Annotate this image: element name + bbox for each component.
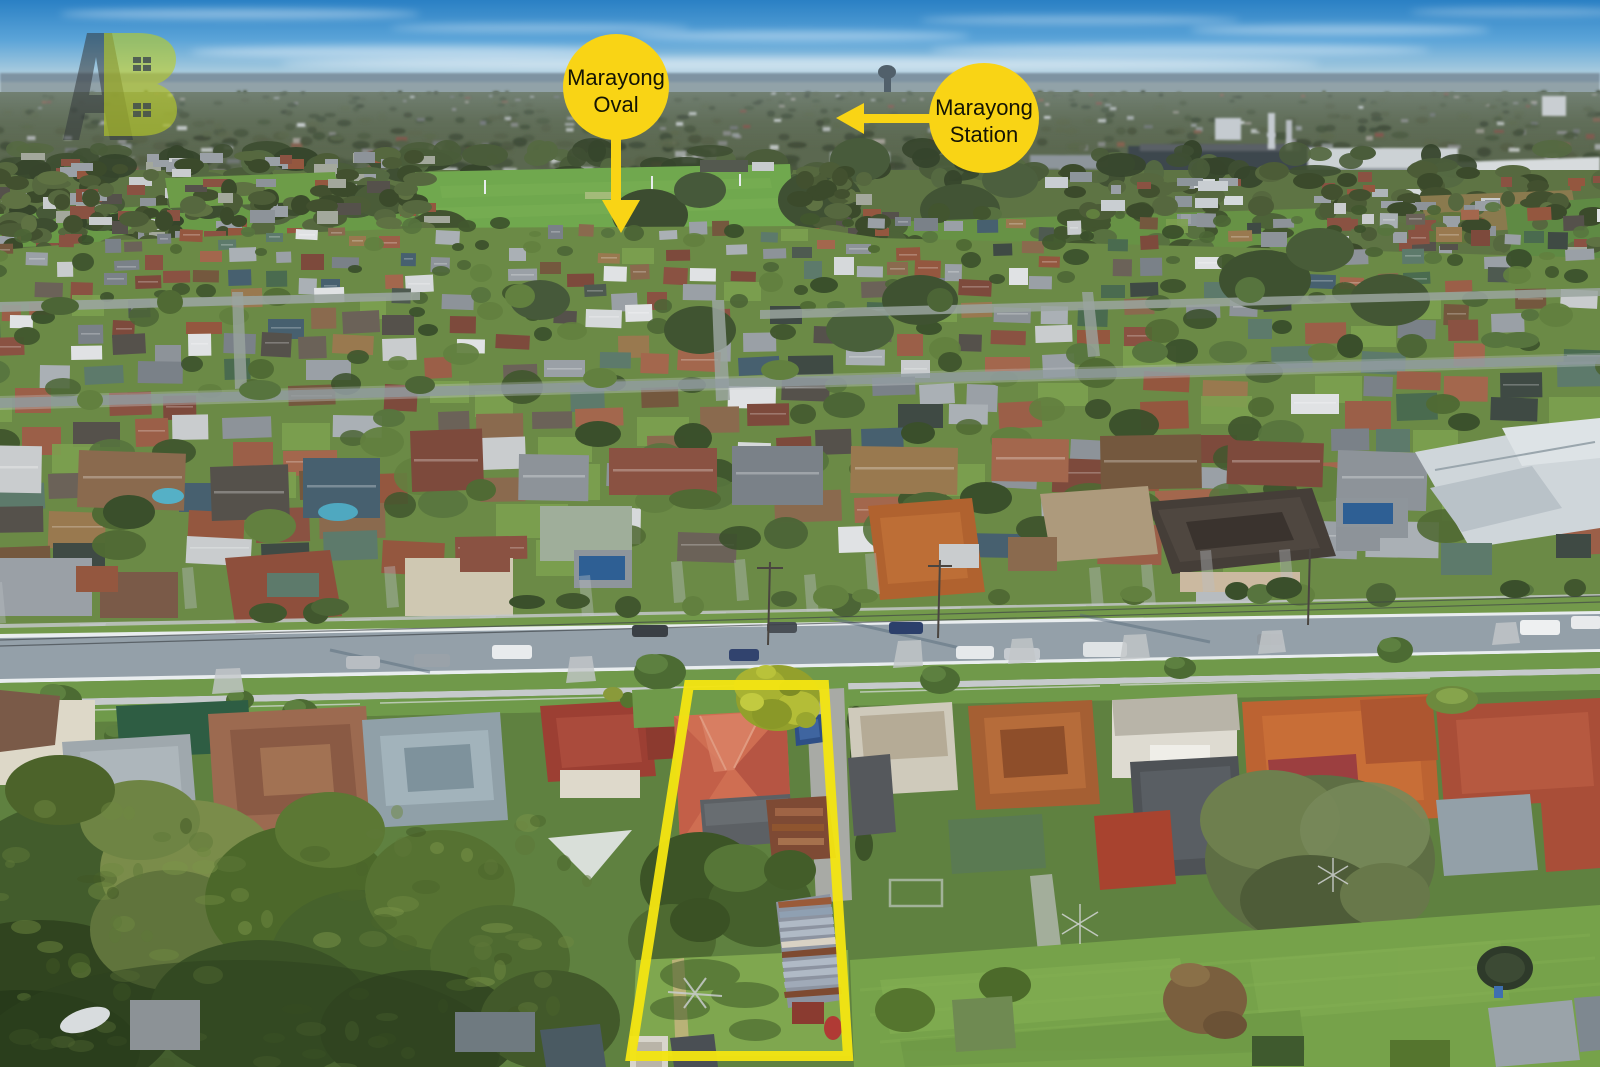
svg-text:Marayong: Marayong [567,65,665,90]
svg-text:Marayong: Marayong [935,95,1033,120]
svg-text:Station: Station [950,122,1019,147]
svg-text:Oval: Oval [593,92,638,117]
